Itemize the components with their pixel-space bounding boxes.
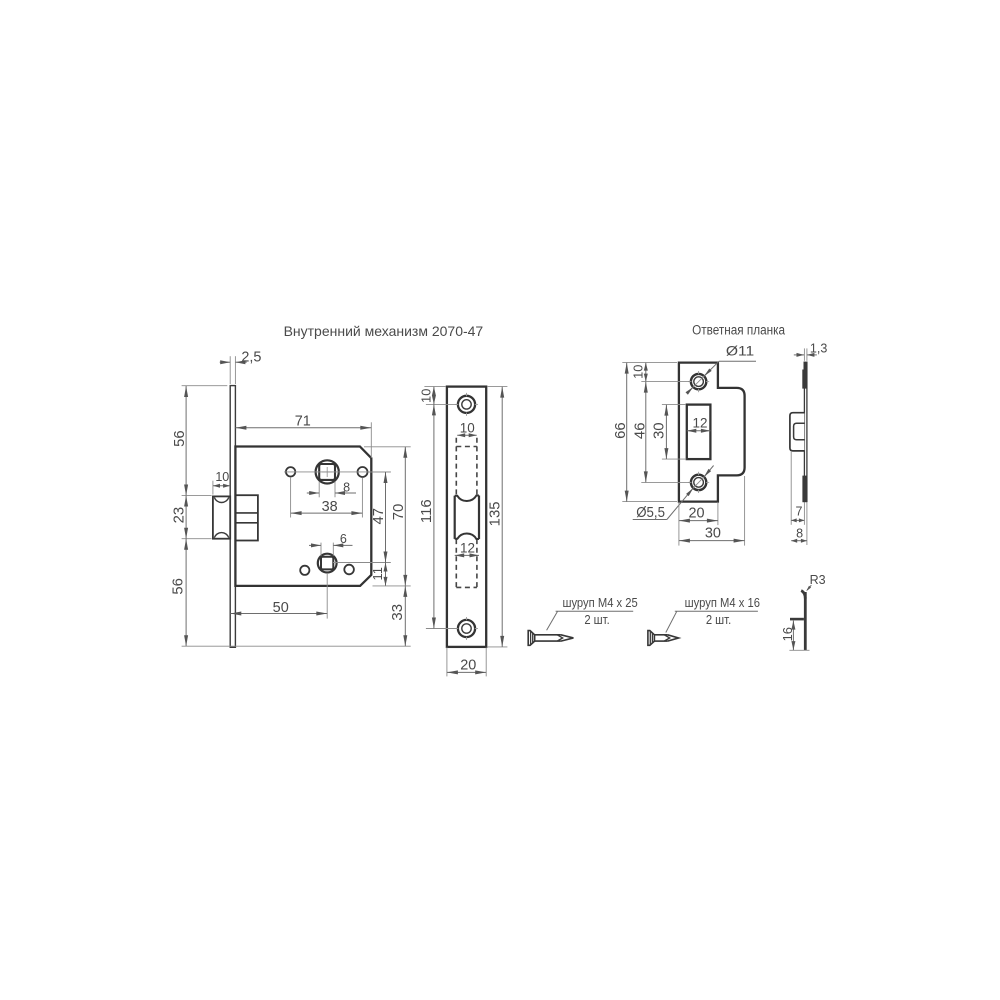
svg-text:8: 8: [796, 525, 803, 540]
svg-text:20: 20: [460, 657, 476, 673]
svg-text:12: 12: [460, 539, 475, 555]
svg-text:56: 56: [169, 578, 186, 595]
svg-text:8: 8: [343, 479, 350, 494]
svg-text:116: 116: [418, 499, 435, 523]
svg-text:шуруп M4 x 16: шуруп M4 x 16: [685, 595, 760, 610]
svg-text:30: 30: [650, 422, 667, 439]
svg-text:R3: R3: [810, 572, 826, 587]
svg-text:10: 10: [630, 365, 645, 379]
svg-text:Ø11: Ø11: [726, 343, 754, 359]
svg-text:46: 46: [631, 423, 648, 440]
svg-text:20: 20: [688, 505, 704, 521]
svg-text:135: 135: [486, 501, 503, 526]
svg-text:шуруп M4 x 25: шуруп M4 x 25: [562, 595, 637, 610]
svg-text:56: 56: [171, 430, 188, 447]
svg-text:11: 11: [370, 567, 385, 580]
svg-text:70: 70: [390, 504, 407, 521]
svg-text:Ответная планка: Ответная планка: [692, 321, 786, 337]
svg-text:12: 12: [693, 414, 708, 430]
svg-text:47: 47: [370, 508, 387, 525]
svg-text:1,3: 1,3: [810, 340, 827, 355]
svg-text:30: 30: [705, 525, 721, 541]
svg-text:16: 16: [780, 627, 795, 641]
svg-text:50: 50: [273, 599, 289, 615]
svg-text:10: 10: [215, 469, 229, 484]
svg-text:23: 23: [170, 507, 187, 524]
svg-text:2 шт.: 2 шт.: [584, 612, 609, 627]
svg-text:66: 66: [612, 422, 629, 439]
svg-text:10: 10: [418, 389, 433, 403]
svg-text:7: 7: [796, 503, 803, 518]
svg-text:38: 38: [322, 498, 338, 514]
svg-text:33: 33: [389, 604, 406, 621]
svg-text:Внутренний механизм 2070-47: Внутренний механизм 2070-47: [284, 323, 484, 339]
svg-text:71: 71: [295, 413, 311, 429]
svg-text:6: 6: [340, 531, 347, 546]
svg-text:2 шт.: 2 шт.: [706, 612, 731, 627]
svg-text:Ø5,5: Ø5,5: [636, 504, 665, 521]
svg-text:10: 10: [460, 419, 475, 435]
svg-text:2,5: 2,5: [241, 349, 261, 365]
